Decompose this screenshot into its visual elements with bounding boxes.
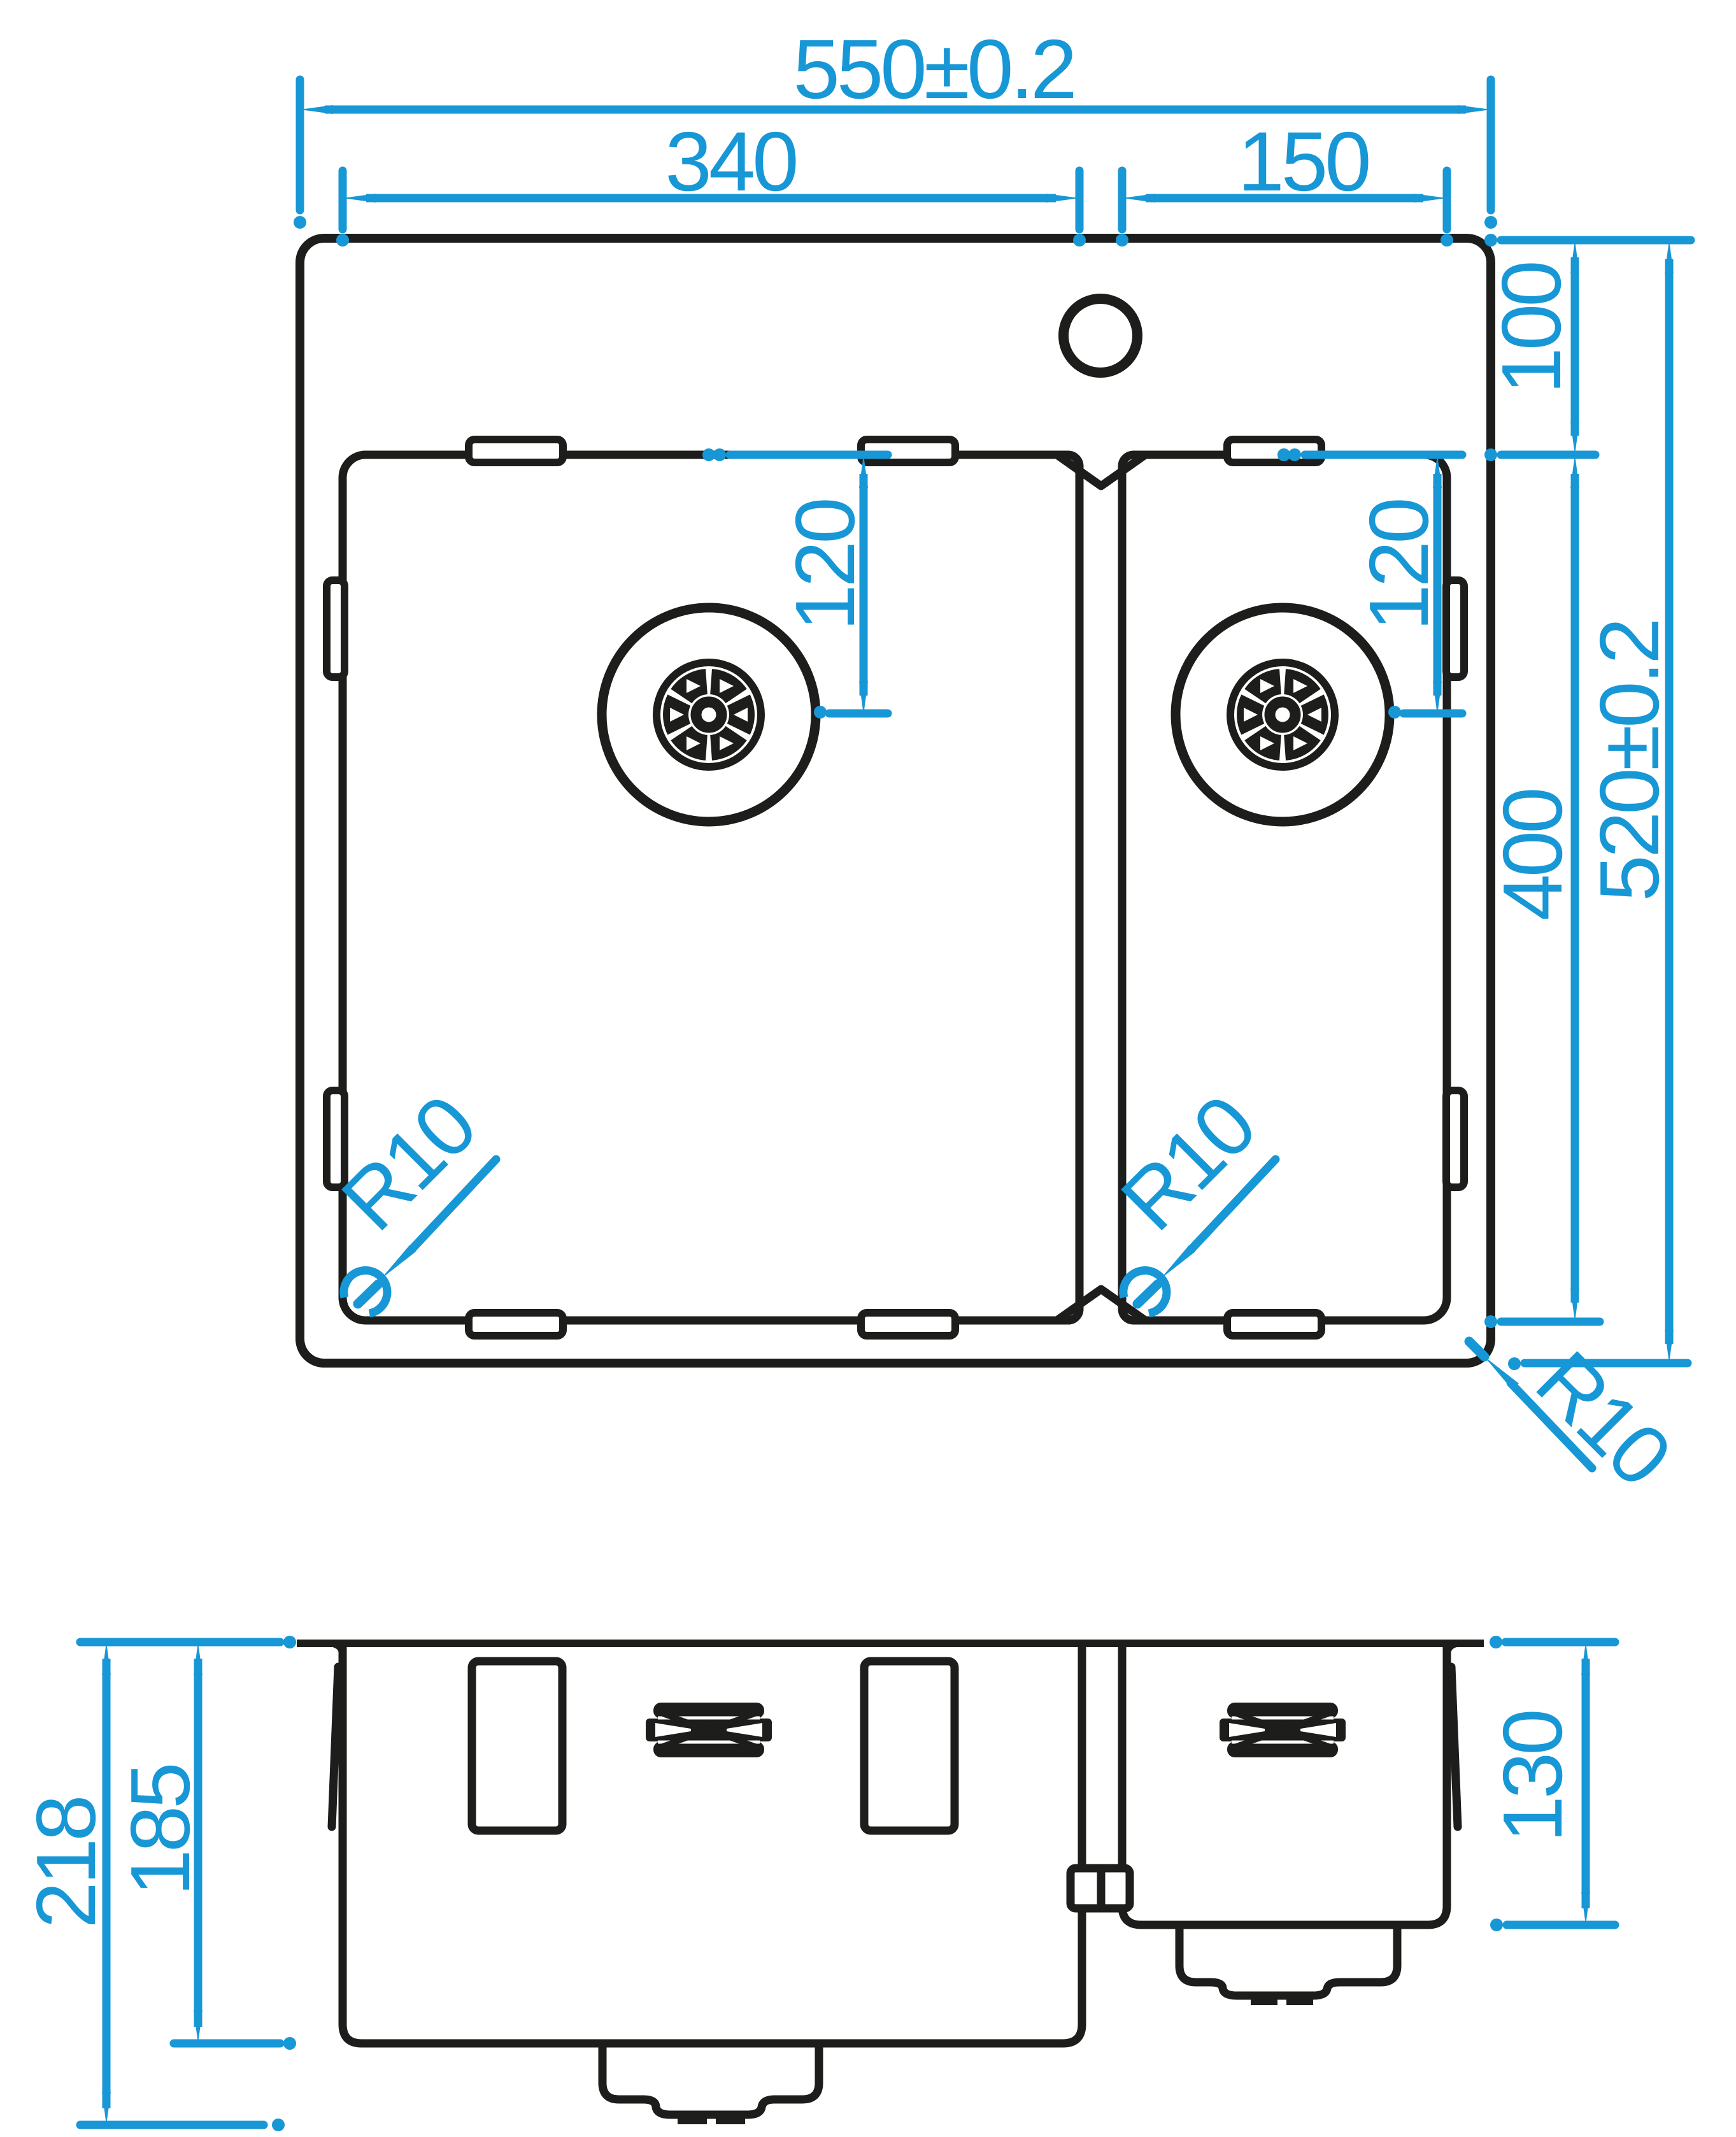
- svg-text:150: 150: [1237, 115, 1369, 208]
- svg-text:218: 218: [19, 1798, 113, 1928]
- svg-text:185: 185: [113, 1765, 207, 1896]
- svg-text:520±0.2: 520±0.2: [1583, 620, 1676, 901]
- svg-text:400: 400: [1486, 790, 1579, 921]
- svg-text:100: 100: [1484, 263, 1578, 394]
- svg-text:550±0.2: 550±0.2: [793, 22, 1074, 116]
- svg-text:120: 120: [778, 500, 872, 631]
- svg-text:120: 120: [1352, 500, 1446, 631]
- svg-text:130: 130: [1486, 1712, 1579, 1843]
- svg-text:340: 340: [665, 115, 796, 208]
